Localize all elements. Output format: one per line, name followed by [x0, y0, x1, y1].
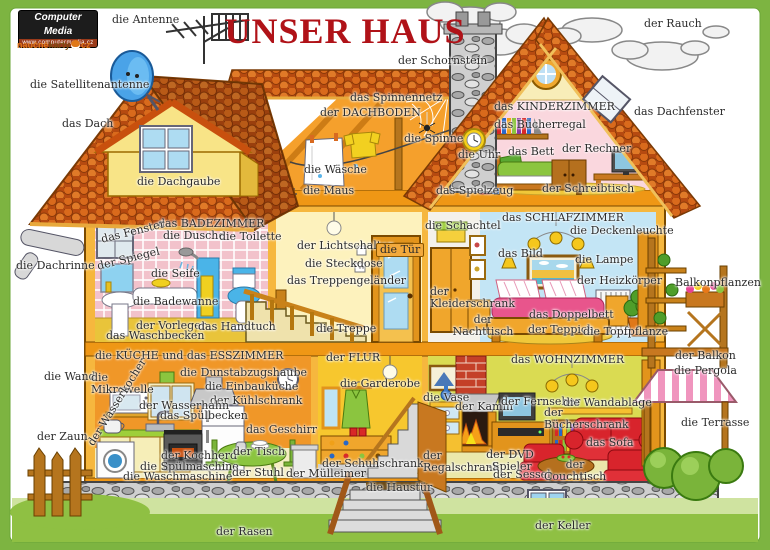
label-der-schreibtisch: der Schreibtisch	[542, 183, 634, 195]
label-das-bett: das Bett	[508, 146, 554, 158]
label-die-terrasse: die Terrasse	[681, 417, 749, 429]
label-das-spinnennetz: das Spinnennetz	[350, 92, 442, 104]
label-die-antenne: die Antenne	[112, 14, 179, 26]
label-das-handtuch: das Handtuch	[198, 321, 276, 333]
label-der-couchtisch: der Couchtisch	[544, 459, 606, 484]
spider-icon	[424, 125, 430, 131]
logo-naucnekarty-a: naučné	[17, 40, 49, 50]
label-der-nachttisch: der Nachttisch	[452, 314, 514, 339]
label-das-doppelbett: das Doppelbett	[529, 309, 614, 321]
label-der-rauch: der Rauch	[644, 18, 702, 30]
label-die-einbaukueche: die Einbauküche	[205, 381, 298, 393]
label-der-rasen: der Rasen	[216, 526, 273, 538]
logo-naucnekarty-b: karty	[49, 40, 71, 50]
label-das-sofa: das Sofa	[586, 437, 634, 449]
label-die-badewanne: die Badewanne	[133, 296, 218, 308]
label-die-pergola: die Pergola	[674, 365, 737, 377]
label-die-lampe: die Lampe	[575, 254, 633, 266]
label-die-dusche: die Dusche	[163, 230, 225, 242]
label-die-treppe: die Treppe	[316, 323, 376, 335]
label-die-garderobe: die Garderobe	[340, 378, 420, 390]
logo-naucnekarty: naučnékartycz	[17, 40, 91, 50]
label-die-schachtel: die Schachtel	[425, 220, 501, 232]
logo-naucnekarty-c: cz	[81, 40, 91, 50]
label-die-dunstabzugshaube: die Dunstabzugshaube	[180, 367, 307, 379]
label-die-kueche: die KÜCHE und das ESSZIMMER	[95, 350, 283, 362]
poster: UNSER HAUS Computer Media www.computerme…	[0, 0, 770, 550]
label-das-treppengelaender: das Treppengeländer	[287, 275, 406, 287]
label-die-steckdose: die Steckdose	[305, 258, 383, 270]
label-die-wand: die Wand	[44, 371, 96, 383]
page-title: UNSER HAUS	[150, 13, 540, 49]
label-der-balkon: der Balkon	[675, 350, 736, 362]
label-das-kinderzimmer: das KINDERZIMMER	[494, 101, 615, 113]
front-door-leaf	[418, 402, 446, 492]
label-der-stuhl: der Stuhl	[232, 467, 284, 479]
owl-icon	[71, 40, 80, 49]
label-der-schuhschrank: der Schuhschrank	[322, 458, 424, 470]
label-der-dachboden: der DACHBODEN	[320, 107, 421, 119]
label-der-schornstein: der Schornstein	[398, 55, 487, 67]
label-das-wohnzimmer: das WOHNZIMMER	[511, 354, 624, 366]
label-das-buecherregal: das Bücherregal	[494, 119, 586, 131]
label-die-waschmaschine: die Waschmaschine	[123, 471, 232, 483]
label-das-dachfenster: das Dachfenster	[634, 106, 725, 118]
label-der-keller: der Keller	[535, 520, 591, 532]
label-der-buecherschrank: der Bücherschrank	[544, 407, 629, 432]
label-balkonpflanzen: Balkonpflanzen	[675, 277, 761, 289]
label-der-rechner: der Rechner	[562, 143, 631, 155]
label-der-tisch: der Tisch	[233, 446, 285, 458]
label-das-waschbecken: das Waschbecken	[106, 330, 205, 342]
label-die-seife: die Seife	[151, 268, 200, 280]
label-der-zaun: der Zaun	[37, 431, 88, 443]
label-das-geschirr: das Geschirr	[246, 424, 317, 436]
label-der-sessel: der Sessel	[493, 469, 551, 481]
label-die-tuer: die Tür	[376, 243, 424, 257]
label-die-uhr: die Uhr	[458, 149, 500, 161]
label-die-spinne: die Spinne	[404, 133, 463, 145]
label-der-flur: der FLUR	[326, 352, 380, 364]
label-das-spielzeug: das Spielzeug	[436, 185, 513, 197]
label-das-dach: das Dach	[62, 118, 113, 130]
label-die-dachrinne: die Dachrinne	[16, 260, 95, 272]
label-das-schlafzimmer: das SCHLAFZIMMER	[502, 212, 624, 224]
label-die-topfpflanze: die Topfpflanze	[583, 326, 668, 338]
label-die-satellitenantenne: die Satellitenantenne	[30, 79, 149, 91]
label-das-bild: das Bild	[498, 248, 543, 260]
label-die-deckenleuchte: die Deckenleuchte	[570, 225, 674, 237]
label-die-waesche: die Wäsche	[304, 164, 367, 176]
label-der-heizkoerper: der Heizkörper	[577, 275, 662, 287]
label-die-maus: die Maus	[303, 185, 354, 197]
label-der-kleiderschrank: der Kleiderschrank	[430, 286, 515, 311]
label-die-toilette: die Toilette	[219, 231, 282, 243]
label-die-haustuer: die Haustür	[366, 482, 432, 494]
label-die-dachgaube: die Dachgaube	[137, 176, 220, 188]
logo-computer-media-name: Computer Media	[34, 12, 81, 37]
label-das-spuelbecken: das Spülbecken	[160, 410, 248, 422]
